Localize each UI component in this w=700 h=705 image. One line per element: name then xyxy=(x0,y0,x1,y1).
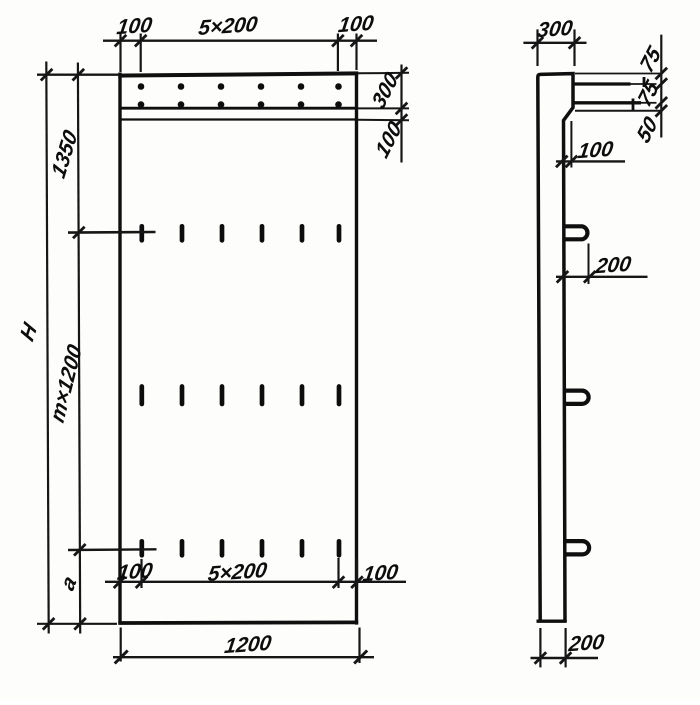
svg-text:50: 50 xyxy=(633,112,662,148)
svg-text:300: 300 xyxy=(368,68,402,114)
svg-text:5×200: 5×200 xyxy=(206,559,268,586)
svg-text:1350: 1350 xyxy=(48,126,82,182)
svg-text:a: a xyxy=(57,571,81,594)
svg-text:100: 100 xyxy=(115,14,153,39)
svg-text:100: 100 xyxy=(116,559,154,584)
svg-text:1200: 1200 xyxy=(223,632,273,658)
svg-text:5×200: 5×200 xyxy=(197,13,259,40)
svg-text:100: 100 xyxy=(576,138,614,163)
svg-text:100: 100 xyxy=(337,12,375,37)
svg-text:100: 100 xyxy=(361,561,399,586)
svg-text:H: H xyxy=(17,319,42,346)
svg-text:m×1200: m×1200 xyxy=(47,341,87,426)
svg-text:300: 300 xyxy=(536,17,574,42)
svg-text:200: 200 xyxy=(566,631,605,657)
svg-text:200: 200 xyxy=(593,253,632,279)
